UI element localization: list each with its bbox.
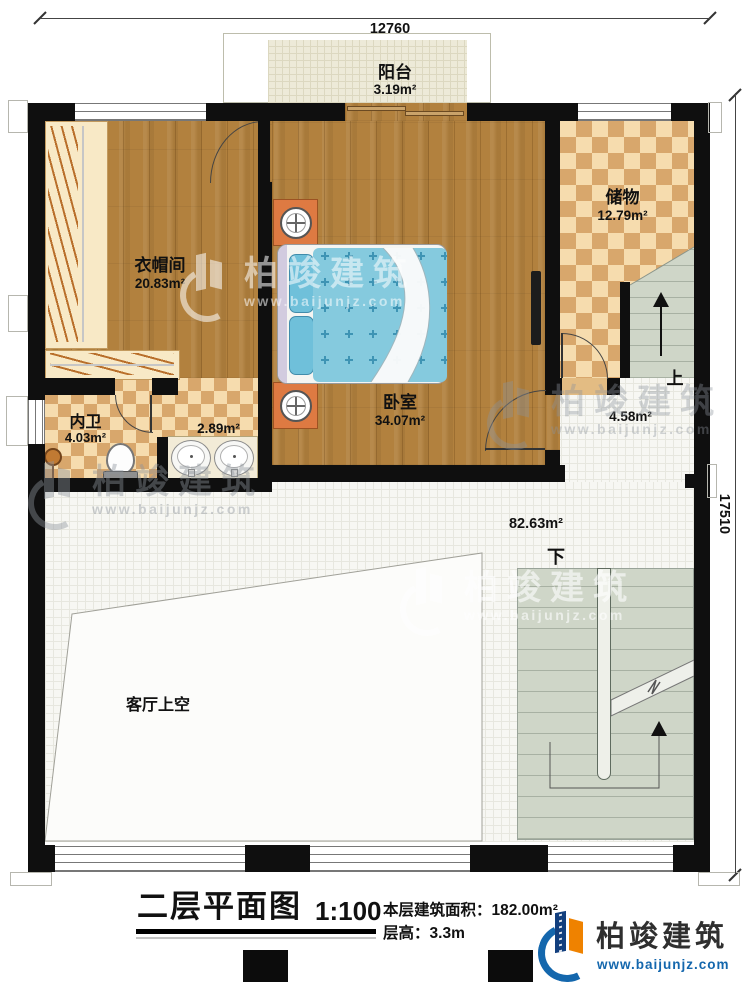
floor-height-value: 3.3m [430,925,465,942]
door-leaf [485,448,545,450]
room-label-balcony: 阳台 [355,64,435,83]
wall [258,465,565,482]
sliding-door-panel [347,106,406,111]
wall [545,378,562,395]
headboard [278,245,287,383]
dimension-line-top [40,18,710,19]
sill [8,295,28,332]
stair-break-band [611,660,694,716]
nightstand-top [273,199,318,246]
window [28,400,45,444]
pillow [289,316,314,375]
stair-rail [597,568,611,780]
title-underline [136,929,376,934]
wardrobe-rod [82,126,84,342]
hanger-rail-icon [48,126,78,342]
wall [545,121,560,390]
plan-scale: 1:100 [315,897,382,926]
door-leaf [561,333,563,378]
room-area-storage: 12.79m² [580,209,665,224]
floor-area-line: 本层建筑面积：182.00m² [383,902,558,919]
column-marker [488,950,533,982]
wall [545,450,560,482]
sill [10,872,52,886]
pillow [289,254,314,313]
room-area-upper-stair-hall: 4.58m² [598,410,663,425]
room-area-vanity: 2.89m² [186,422,251,437]
lamp-icon [280,207,312,239]
wall [28,845,55,872]
room-area-cloakroom: 20.83m² [115,277,205,292]
company-name: 柏竣建筑 [596,922,728,954]
dimension-right-value: 17510 [715,476,731,552]
room-area-balcony: 3.19m² [355,83,435,98]
title-underline-light [136,937,376,939]
room-label-storage: 储物 [580,189,665,208]
sill [8,100,28,133]
bed [277,244,447,384]
logo-building-icon [569,918,583,954]
wall [470,845,548,872]
sill [698,872,740,886]
room-label-cloakroom: 衣帽间 [115,257,205,276]
room-label-bedroom: 卧室 [355,394,445,413]
dimension-top-value: 12760 [350,22,430,38]
wardrobe-bottom [45,350,180,380]
shower-stem [52,466,54,478]
company-website: www.baijunjz.com [597,958,730,973]
wall [607,378,620,395]
sink [171,440,211,476]
dimension-line-right [735,93,736,875]
stair-up-arrow-icon [653,292,669,307]
sliding-door-panel [405,111,464,116]
window [75,101,206,121]
lamp-icon [280,390,312,422]
wall [467,103,578,121]
floor-height-line: 层高：3.3m [383,925,465,942]
stair-up-label: 上 [664,370,686,389]
shower-head-icon [44,448,62,466]
window [310,845,470,872]
room-label-living-void: 客厅上空 [118,697,198,715]
stair-up-arrow-icon [651,721,667,736]
floor-height-label: 层高： [383,925,430,942]
plan-title: 二层平面图 [137,890,302,924]
window [548,845,673,872]
room-label-bathroom: 内卫 [48,414,123,432]
wardrobe-left [45,121,108,349]
logo-building-icon [555,911,566,953]
wall [206,103,345,121]
floor-plan: 阳台 3.19m² 衣帽间 20.83m² 卧室 34.07m² 储物 12.7… [0,0,750,990]
sill [708,102,722,133]
room-area-hall: 82.63m² [501,517,571,533]
window [578,101,671,121]
wall-stair-stub [620,282,630,378]
window [55,845,245,872]
tv [531,271,541,345]
room-area-bathroom: 4.03m² [48,431,123,445]
wall [28,478,272,492]
plan-linework [0,0,750,990]
door-leaf [150,395,152,432]
stair-down-label: 下 [545,548,567,568]
wall [258,182,272,478]
wall [673,845,710,872]
wall-pier [685,474,694,488]
wall [152,378,178,395]
floor-area-label: 本层建筑面积： [383,902,492,919]
wardrobe-rod [50,364,174,366]
nightstand-bottom [273,382,318,429]
company-logo [538,916,596,978]
living-void-outline [45,553,482,841]
room-area-bedroom: 34.07m² [355,414,445,429]
wall [45,378,115,395]
sink [214,440,254,476]
column-marker [243,950,288,982]
sill [6,396,28,446]
quilt [313,248,447,382]
door-leaf [258,121,270,182]
wall [245,845,310,872]
